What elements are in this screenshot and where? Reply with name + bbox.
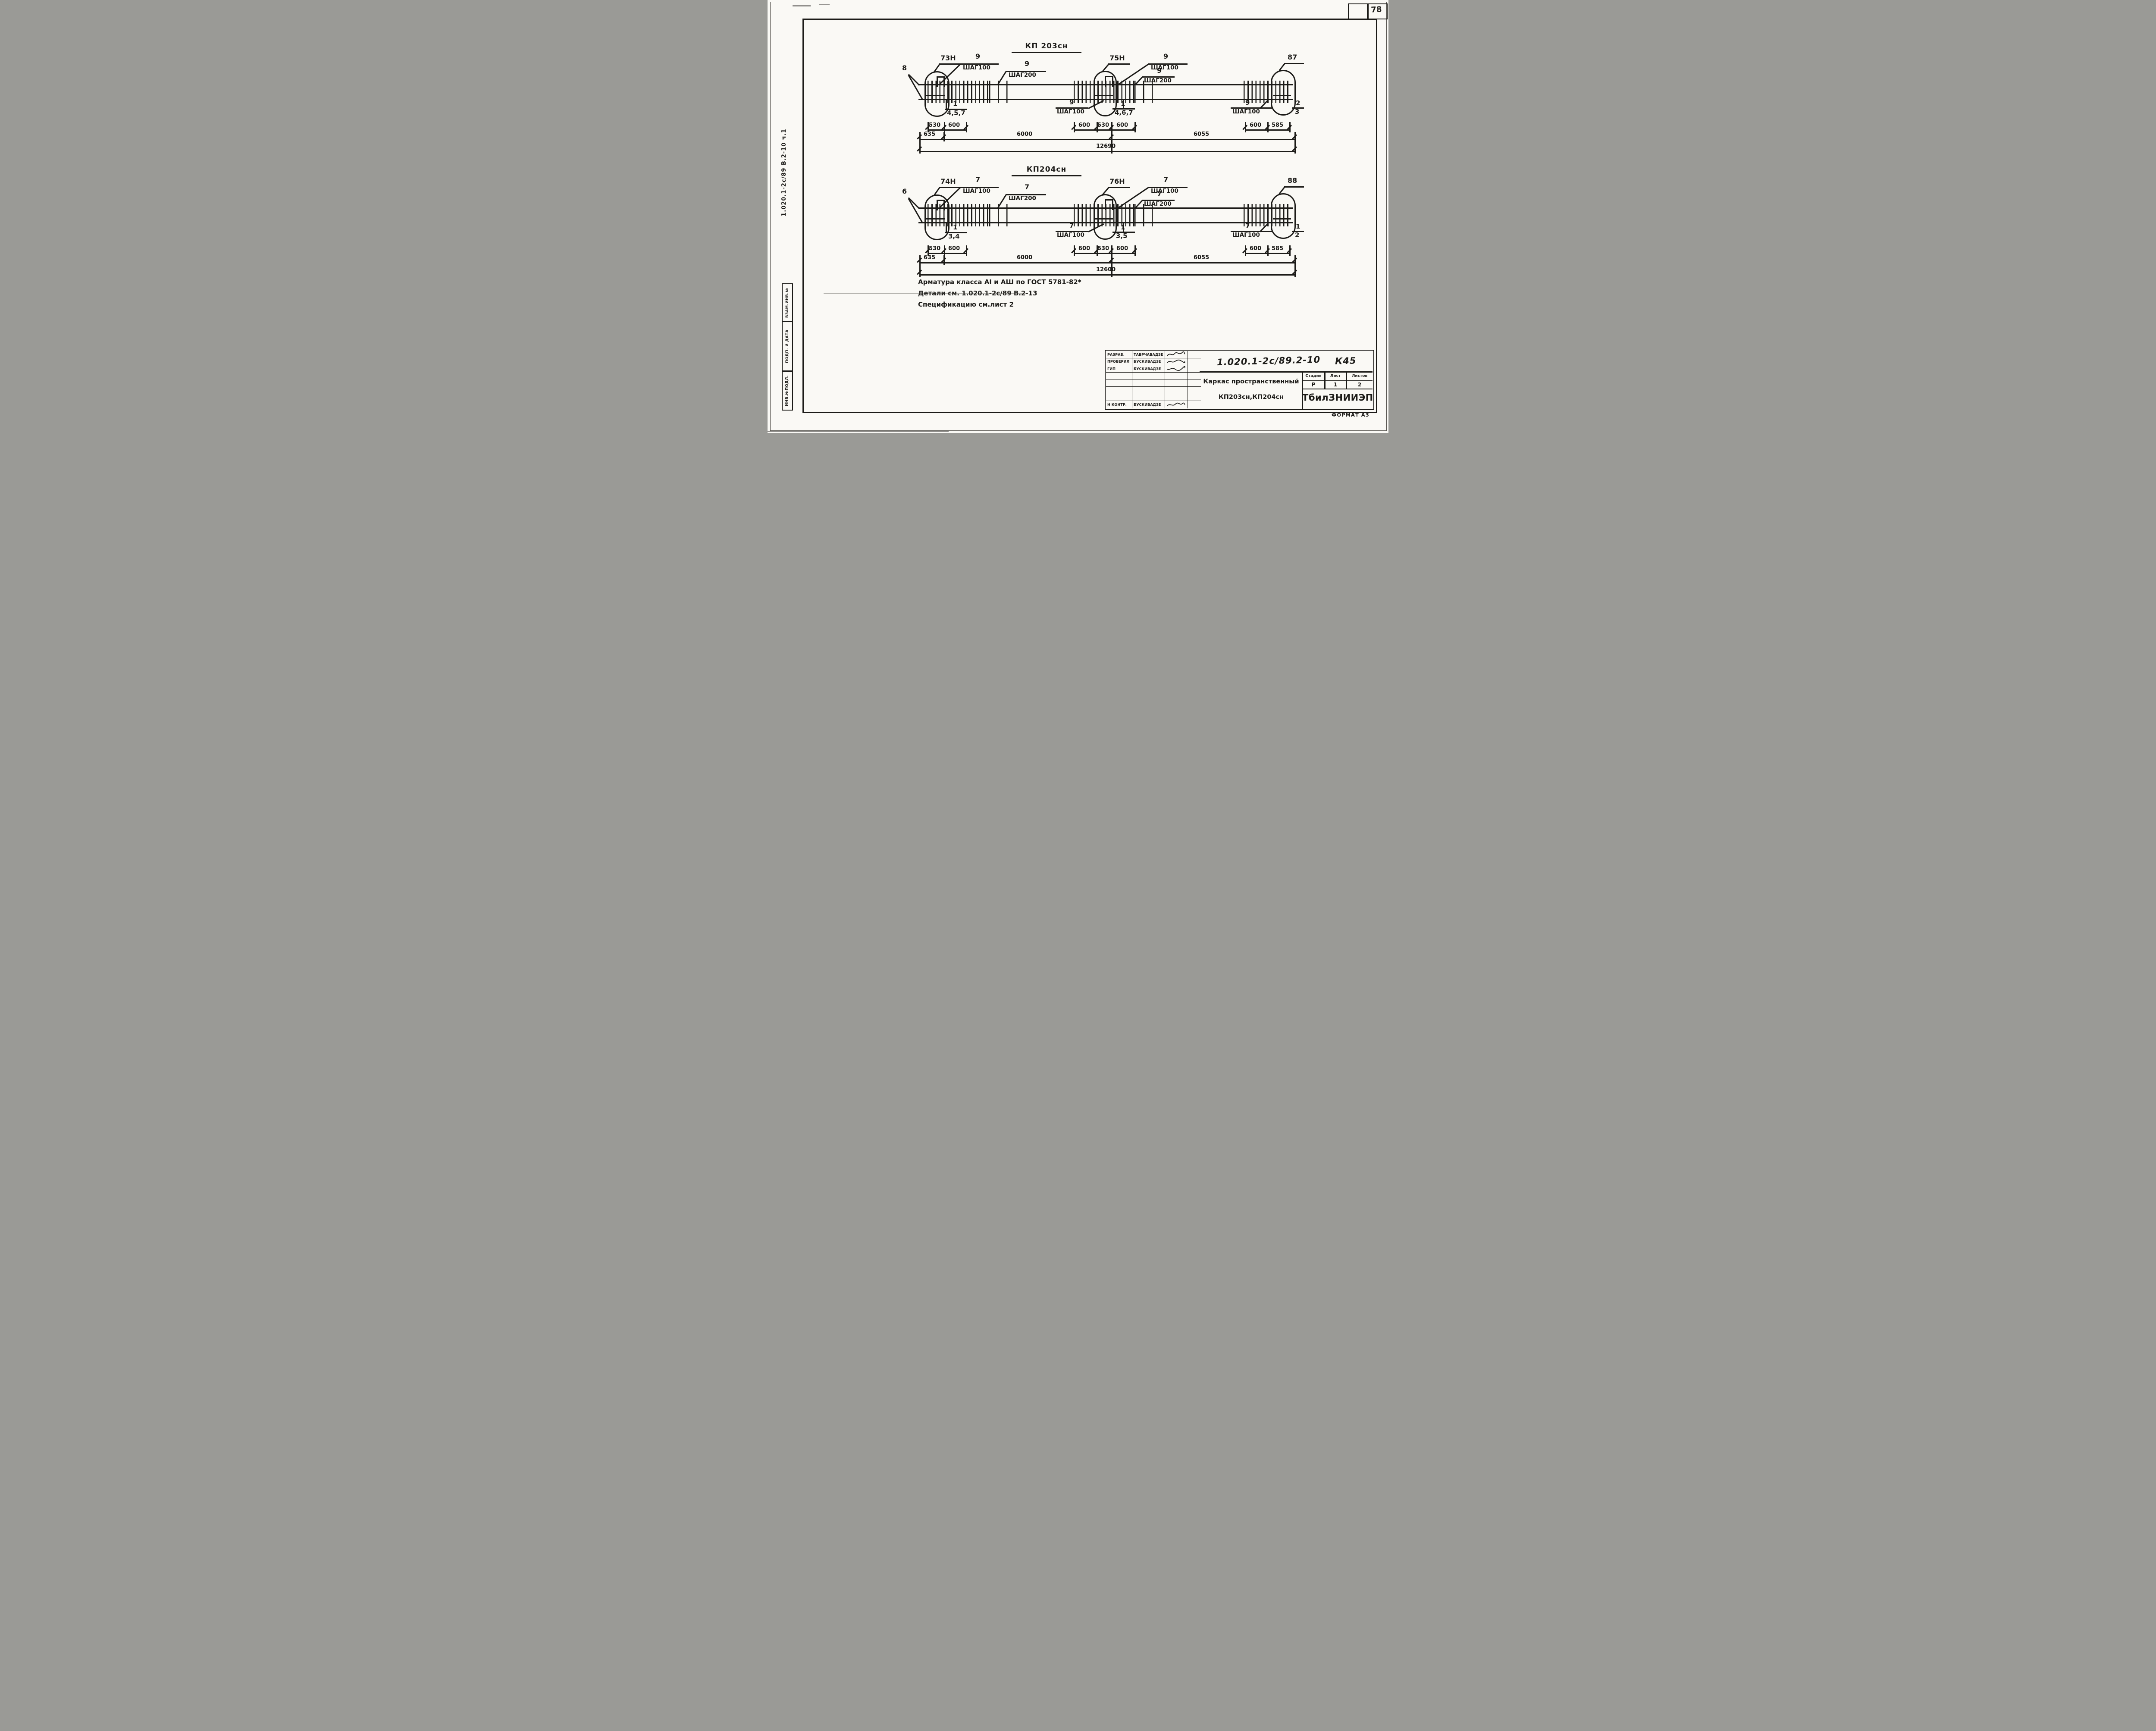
kp204-step4-text: ШАГ200 bbox=[1144, 201, 1172, 207]
page-number: 78 bbox=[1368, 6, 1385, 15]
titleblock-doc-number: 1.020.1-2с/89.2-10 bbox=[1217, 355, 1321, 367]
kp203-det-mid-bar bbox=[1108, 63, 1130, 65]
kp204-b2-num: 7 bbox=[1069, 223, 1074, 229]
kp203-frac-top: 2 bbox=[1296, 100, 1300, 107]
page-number-box: 78 bbox=[1367, 3, 1388, 19]
kp204-lap-bar-left bbox=[925, 218, 945, 220]
kp203-dimA-mid-line bbox=[1074, 129, 1134, 131]
kp203-step3-num: 9 bbox=[1163, 53, 1168, 60]
kp204-dimA-left-line bbox=[928, 253, 966, 254]
dim-label: 635 bbox=[924, 255, 935, 261]
titleblock-empty-cell bbox=[1106, 373, 1132, 380]
kp203-det-right-bar bbox=[1284, 63, 1304, 64]
titleblock-empty-cell bbox=[1132, 373, 1165, 380]
kp203-step2-num: 9 bbox=[1025, 60, 1029, 68]
scan-artifact bbox=[819, 4, 830, 5]
dim-label: 600 bbox=[1116, 246, 1128, 252]
stamp-inv-podl: ИНВ.№ПОДЛ. bbox=[782, 370, 793, 411]
kp204-lap-bar-mid bbox=[1095, 218, 1113, 220]
kp203-det-right-label: 87 bbox=[1288, 54, 1297, 61]
titleblock-doc-code: К45 bbox=[1335, 356, 1357, 366]
drawing-sheet: 78 1.020.1-2с/89 В.2-10 ч.1 ВЗАМ.ИНВ.№ П… bbox=[768, 0, 1388, 433]
kp203-step4-text: ШАГ200 bbox=[1144, 78, 1172, 84]
kp203-b4-text: ШАГ100 bbox=[1232, 109, 1260, 115]
titleblock-empty-cell bbox=[1188, 373, 1201, 380]
kp203-hook-mark-mid bbox=[1105, 76, 1113, 87]
signature bbox=[1165, 351, 1188, 358]
kp204-step3-text: ШАГ100 bbox=[1151, 188, 1178, 194]
kp204-detail-oval-right bbox=[1271, 193, 1296, 239]
stamp-vzam-inv-label: ВЗАМ.ИНВ.№ bbox=[785, 288, 790, 318]
stage-header: Стадия bbox=[1303, 374, 1324, 378]
kp204-det-right-label: 88 bbox=[1288, 177, 1297, 185]
kp203-b1-leader bbox=[946, 100, 947, 109]
kp204-b4-num: 7 bbox=[1245, 223, 1250, 230]
kp204-b3-num: 1 bbox=[1121, 224, 1125, 231]
kp203-total-line bbox=[919, 151, 1294, 152]
kp204-pos6-label: 6 bbox=[902, 188, 907, 195]
titleblock-doc-band: 1.020.1-2с/89.2-10 К45 bbox=[1201, 351, 1373, 371]
stamp-podp-data: ПОДП. И ДАТА bbox=[782, 321, 793, 372]
dim-label: 635 bbox=[924, 132, 935, 138]
dim-label: 6000 bbox=[1017, 132, 1032, 138]
kp204-b4-text: ШАГ100 bbox=[1232, 232, 1260, 238]
kp204-frac-top: 1 bbox=[1296, 223, 1300, 230]
kp203-step3-text: ШАГ100 bbox=[1151, 65, 1178, 71]
titleblock-empty-cell bbox=[1132, 379, 1165, 387]
dim-label: 600 bbox=[1116, 122, 1128, 129]
kp204-b1-items: 3,4 bbox=[948, 233, 960, 240]
kp204-step1-num: 7 bbox=[975, 176, 980, 184]
stage-value: Р bbox=[1303, 382, 1324, 388]
titleblock-empty-cell bbox=[1165, 379, 1188, 387]
format-note: ФОРМАТ А3 bbox=[1332, 412, 1369, 417]
kp204-det-right-bar bbox=[1284, 186, 1304, 188]
scan-artifact bbox=[768, 431, 949, 432]
dim-label: 600 bbox=[1250, 122, 1261, 129]
titleblock-name-cell: БУСКИВАДЗЕ bbox=[1132, 401, 1165, 408]
titleblock-empty-cell bbox=[1132, 394, 1165, 401]
titleblock-date-cell bbox=[1188, 401, 1201, 408]
kp203-dimA-left-line bbox=[928, 129, 966, 131]
dim-label: 600 bbox=[948, 122, 960, 129]
signature bbox=[1165, 365, 1188, 373]
titleblock-role-cell: РАЗРАБ. bbox=[1106, 351, 1132, 358]
kp204-step3-num: 7 bbox=[1163, 176, 1168, 184]
titleblock-role-cell: ГИП bbox=[1106, 365, 1132, 373]
titleblock-empty-cell bbox=[1106, 394, 1132, 401]
dim-label: 530 bbox=[1097, 246, 1109, 252]
kp204-step2-num: 7 bbox=[1025, 184, 1029, 191]
titleblock-empty-cell bbox=[1188, 394, 1201, 401]
kp204-step2-text: ШАГ200 bbox=[1009, 195, 1036, 201]
titleblock-empty-cell bbox=[1165, 394, 1188, 401]
dim-label: 600 bbox=[1250, 246, 1261, 252]
dim-label: 530 bbox=[1097, 122, 1109, 129]
kp203-frac-bot: 3 bbox=[1295, 109, 1299, 116]
scan-artifact bbox=[824, 293, 1026, 294]
kp203-pos8-label: 8 bbox=[902, 65, 907, 72]
organization-name: ТбилЗНИИЭП bbox=[1302, 393, 1373, 402]
kp204-stirrups-left-sparse bbox=[989, 204, 1012, 226]
titleblock-title-line2: КП203сн,КП204сн bbox=[1200, 394, 1302, 401]
dim-label: 6055 bbox=[1194, 255, 1209, 261]
kp204-det-mid-bar bbox=[1108, 187, 1130, 188]
kp204-det-left-bar bbox=[939, 187, 962, 188]
sheet-header: Лист bbox=[1325, 374, 1346, 378]
kp204-frac-bot: 2 bbox=[1295, 232, 1299, 239]
kp203-det-mid-label: 75Н bbox=[1109, 55, 1125, 62]
kp204-dimB-line bbox=[919, 262, 1294, 263]
dim-label: 600 bbox=[1078, 246, 1090, 252]
kp204-det-mid-label: 76Н bbox=[1109, 178, 1125, 185]
sheets-value: 2 bbox=[1347, 382, 1373, 388]
minitable-line bbox=[1302, 389, 1373, 389]
note-line-3: Спецификацию см.лист 2 bbox=[918, 301, 1014, 308]
titleblock-name-cell: БУСКИВАДЗЕ bbox=[1132, 365, 1165, 373]
kp203-lap-bar-mid bbox=[1095, 95, 1113, 96]
kp204-det-left-label: 74Н bbox=[940, 178, 956, 185]
dim-label: 530 bbox=[929, 246, 940, 252]
stamp-vzam-inv: ВЗАМ.ИНВ.№ bbox=[782, 283, 793, 322]
titleblock-empty-cell bbox=[1106, 387, 1132, 394]
kp204-b1-leader bbox=[946, 223, 947, 232]
kp203-b3-num: 1 bbox=[1121, 101, 1125, 108]
kp203-title: КП 203сн bbox=[1012, 43, 1081, 53]
stamp-podp-data-label: ПОДП. И ДАТА bbox=[785, 329, 790, 363]
kp203-b4-num: 9 bbox=[1245, 100, 1250, 107]
kp203-b2-text: ШАГ100 bbox=[1057, 109, 1084, 115]
kp203-det-left-label: 73Н bbox=[940, 55, 956, 62]
titleblock-date-cell bbox=[1188, 365, 1201, 373]
kp203-dimB-line bbox=[919, 139, 1294, 140]
kp204-b3-items: 3,5 bbox=[1116, 233, 1128, 240]
kp204-total-line bbox=[919, 274, 1294, 276]
dim-label: 600 bbox=[1078, 122, 1090, 129]
kp203-step1-text: ШАГ100 bbox=[963, 65, 990, 71]
kp203-b2-num: 9 bbox=[1069, 99, 1074, 106]
sheet-value: 1 bbox=[1325, 382, 1346, 388]
titleblock-empty-cell bbox=[1165, 387, 1188, 394]
titleblock-empty-cell bbox=[1188, 379, 1201, 387]
titleblock-name-cell: БУСКИВАДЗЕ bbox=[1132, 358, 1165, 366]
dim-label: 600 bbox=[948, 246, 960, 252]
dim-label: 585 bbox=[1272, 122, 1283, 129]
kp204-step4-num: 7 bbox=[1157, 191, 1162, 198]
titleblock-name-cell: ТАВРЧАВАДЗЕ bbox=[1132, 351, 1165, 358]
kp204-dimA-mid-line bbox=[1074, 253, 1134, 254]
kp203-det-left-bar bbox=[939, 63, 962, 65]
kp204-hook-mark-mid bbox=[1105, 199, 1113, 210]
kp203-lap-bar-right bbox=[1273, 95, 1291, 96]
dim-label: 6055 bbox=[1194, 132, 1209, 138]
titleblock-role-cell: ПРОВЕРИЛ bbox=[1106, 358, 1132, 366]
titleblock-date-cell bbox=[1188, 358, 1201, 366]
kp203-total-label: 12690 bbox=[1096, 144, 1116, 150]
scan-artifact bbox=[793, 5, 811, 6]
kp203-step2-text: ШАГ200 bbox=[1009, 72, 1036, 78]
kp203-b3-items: 4,6,7 bbox=[1115, 110, 1133, 116]
kp204-title: КП204сн bbox=[1012, 166, 1081, 176]
kp203-stirrups-left-sparse bbox=[989, 81, 1012, 103]
titleblock-title-line1: Каркас пространственный bbox=[1200, 379, 1302, 385]
kp204-total-label: 12600 bbox=[1096, 267, 1116, 273]
kp204-b2-text: ШАГ100 bbox=[1057, 232, 1084, 238]
kp203-step4-num: 9 bbox=[1157, 67, 1162, 75]
titleblock-empty-cell bbox=[1106, 379, 1132, 387]
note-line-1: Арматура класса АI и АШ по ГОСТ 5781-82* bbox=[918, 279, 1081, 286]
kp204-b1-num: 1 bbox=[953, 224, 957, 231]
kp204-lap-bar-right bbox=[1273, 218, 1291, 220]
titleblock-role-cell: Н КОНТР. bbox=[1106, 401, 1132, 408]
signature bbox=[1165, 358, 1188, 366]
kp204-step1-text: ШАГ100 bbox=[963, 188, 990, 194]
titleblock-date-cell bbox=[1188, 351, 1201, 358]
titleblock-empty-cell bbox=[1165, 373, 1188, 380]
kp203-lap-bar-left bbox=[925, 95, 945, 96]
titleblock-empty-cell bbox=[1188, 387, 1201, 394]
kp203-detail-oval-right bbox=[1271, 70, 1296, 116]
margin-doc-ref: 1.020.1-2с/89 В.2-10 ч.1 bbox=[781, 101, 787, 244]
dim-label: 530 bbox=[929, 122, 940, 129]
dim-label: 6000 bbox=[1017, 255, 1032, 261]
dim-label: 585 bbox=[1272, 246, 1283, 252]
signature bbox=[1165, 401, 1188, 408]
sheets-header: Листов bbox=[1347, 374, 1373, 378]
kp203-step1-num: 9 bbox=[975, 53, 980, 60]
titleblock-empty-cell bbox=[1132, 387, 1165, 394]
kp203-b1-num: 1 bbox=[953, 101, 957, 108]
kp203-b1-items: 4,5,7 bbox=[947, 110, 965, 117]
corner-empty-box bbox=[1348, 3, 1369, 19]
titleblock-personnel-table: РАЗРАБ. ТАВРЧАВАДЗЕ ПРОВЕРИЛ БУСКИВАДЗЕ … bbox=[1106, 351, 1201, 408]
stamp-inv-podl-label: ИНВ.№ПОДЛ. bbox=[785, 375, 790, 406]
